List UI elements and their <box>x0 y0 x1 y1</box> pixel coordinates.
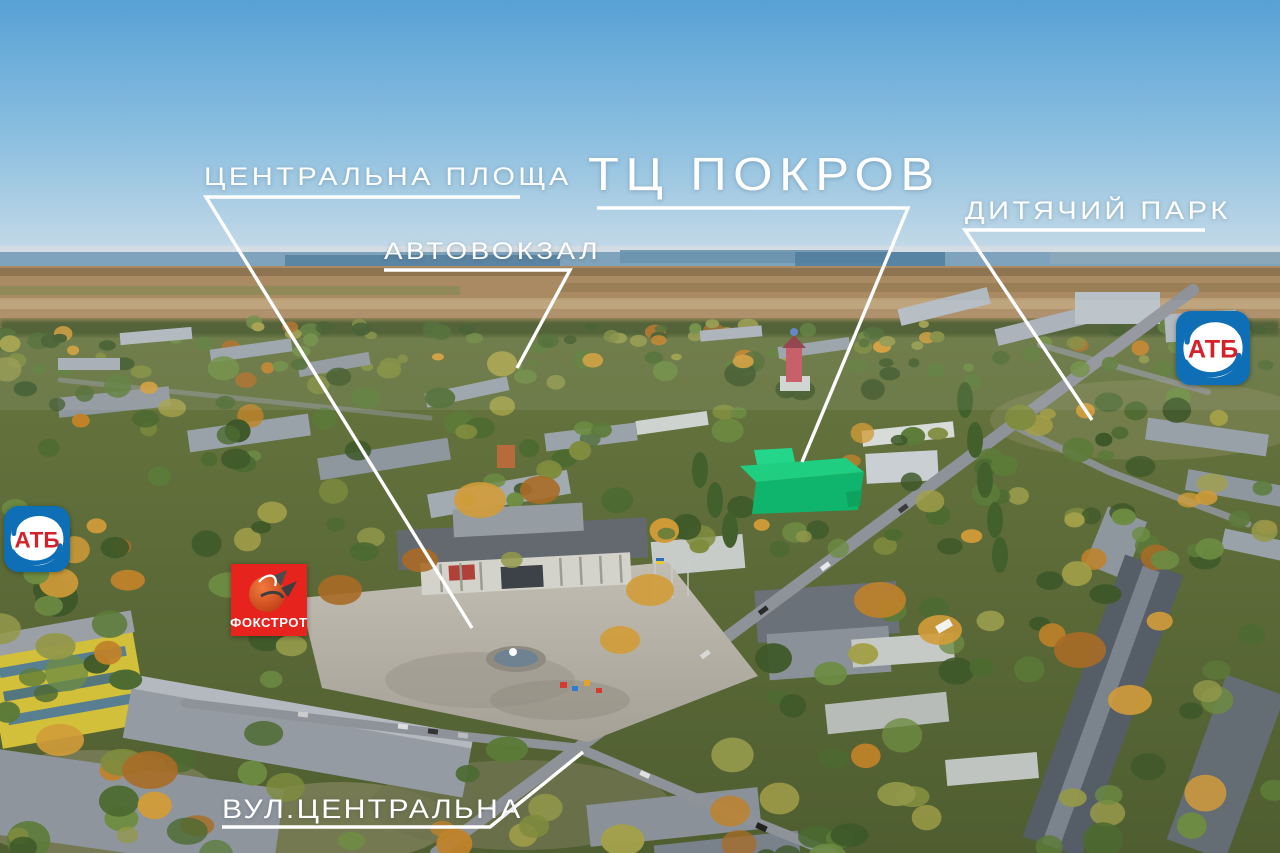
label-street-central: ВУЛ.ЦЕНТРАЛЬНА <box>222 794 523 825</box>
fox-icon <box>231 566 307 618</box>
atb-logo-right: АТБ <box>1176 311 1250 385</box>
foxtrot-logo: ФОКСТРОТ <box>231 564 307 636</box>
label-bus-station: АВТОВОКЗАЛ <box>384 238 601 266</box>
fountain <box>486 646 546 672</box>
annotated-aerial-photo: ЦЕНТРАЛЬНА ПЛОЩА АВТОВОКЗАЛ ТЦ ПОКРОВ ДИ… <box>0 0 1280 853</box>
atb-icon: АТБ <box>1176 311 1250 385</box>
title-tc-pokrov: ТЦ ПОКРОВ <box>588 147 941 201</box>
atb-text: АТБ <box>15 528 60 553</box>
aerial-photo-background <box>0 0 1280 853</box>
foxtrot-text: ФОКСТРОТ <box>230 616 307 630</box>
label-children-park: ДИТЯЧИЙ ПАРК <box>965 197 1231 226</box>
atb-text: АТБ <box>1188 336 1238 364</box>
atb-logo-left: АТБ <box>4 506 70 572</box>
atb-icon: АТБ <box>4 506 70 572</box>
label-central-square: ЦЕНТРАЛЬНА ПЛОЩА <box>204 163 572 192</box>
